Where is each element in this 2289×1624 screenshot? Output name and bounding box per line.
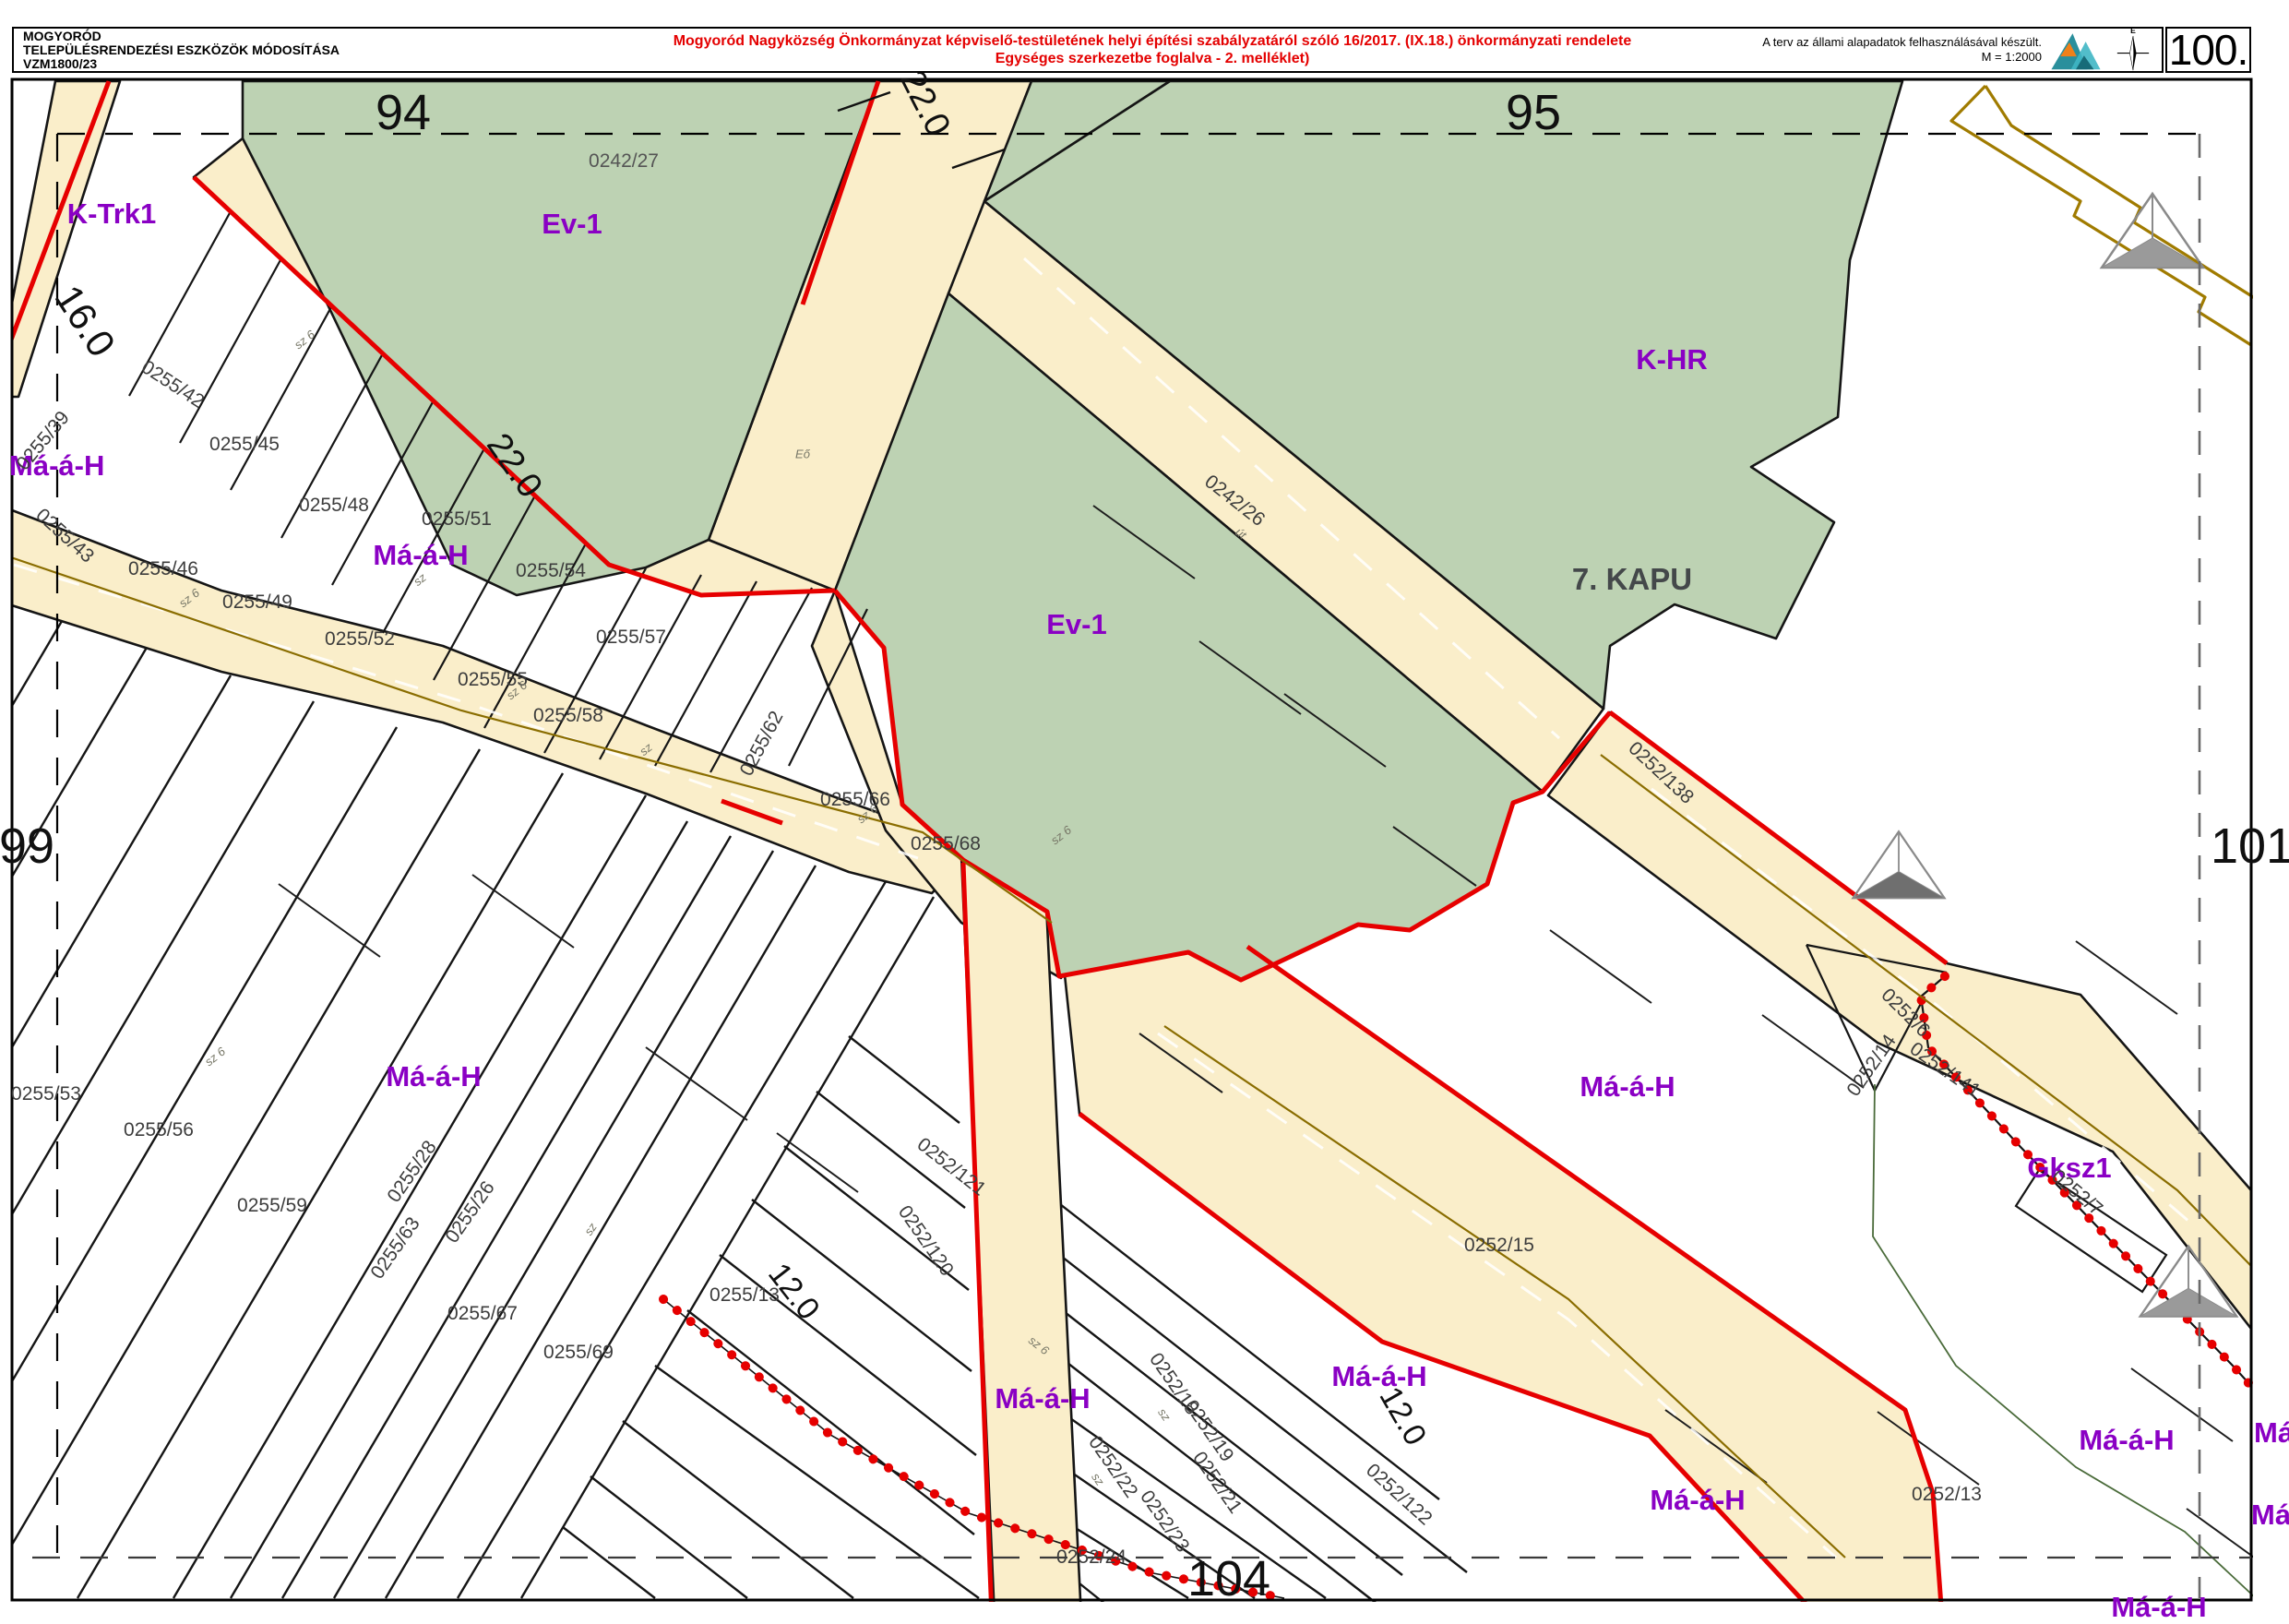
decree-reference: Mogyoród Nagyközség Önkormányzat képvise… [531,29,1774,71]
plan-code: VZM1800/23 [23,57,340,71]
source-note: A terv az állami alapadatok felhasználás… [1762,35,2042,65]
municipality-name: MOGYORÓD [23,30,340,43]
plan-identification: MOGYORÓD TELEPÜLÉSRENDEZÉSI ESZKÖZÖK MÓD… [14,29,340,71]
sheet-number: 100. [2165,27,2251,73]
header-right-block: A terv az állami alapadatok felhasználás… [1762,29,2156,71]
north-label: É [2130,27,2136,35]
north-arrow-icon: É [2110,27,2156,73]
decree-line2: Egységes szerkezetbe foglalva - 2. mellé… [531,50,1774,67]
plan-type: TELEPÜLÉSRENDEZÉSI ESZKÖZÖK MÓDOSÍTÁSA [23,43,340,57]
title-bar: MOGYORÓD TELEPÜLÉSRENDEZÉSI ESZKÖZÖK MÓD… [12,27,2164,73]
road-nw-corner [0,81,120,397]
parcel-lines-fan [0,616,934,1598]
tetrahedron-icon [1854,831,1945,898]
map-sheet: 949599101104K-Trk1Má-á-HMá-á-HEv-1Ev-1K-… [0,0,2289,1618]
map-scale: M = 1:2000 [1762,50,2042,65]
decree-line1: Mogyoród Nagyközség Önkormányzat képvise… [531,32,1774,50]
planned-corridor [1951,86,2289,345]
company-logo-icon [2049,29,2103,71]
zoning-map-canvas[interactable] [0,0,2289,1618]
source-note-text: A terv az állami alapadatok felhasználás… [1762,35,2042,50]
